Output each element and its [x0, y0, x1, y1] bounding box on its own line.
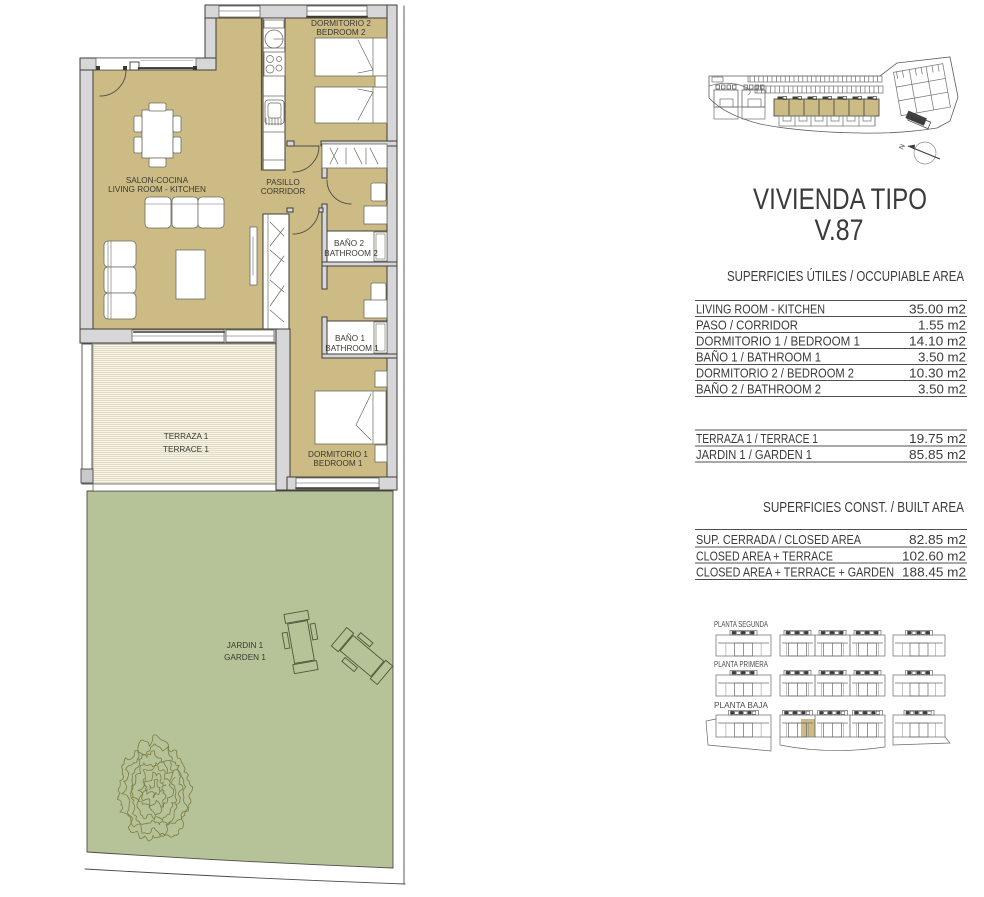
- svg-text:BAÑO 2: BAÑO 2: [334, 238, 364, 248]
- svg-text:DORMITORIO 1 / BEDROOM 1: DORMITORIO 1 / BEDROOM 1: [696, 334, 860, 349]
- svg-text:GARDEN 1: GARDEN 1: [224, 653, 266, 662]
- svg-text:3.50 m2: 3.50 m2: [918, 350, 966, 365]
- svg-text:DORMITORIO 1: DORMITORIO 1: [308, 450, 368, 459]
- svg-text:PLANTA SEGUNDA: PLANTA SEGUNDA: [714, 620, 768, 629]
- svg-text:10.30 m2: 10.30 m2: [909, 366, 966, 381]
- svg-text:SUP. CERRADA / CLOSED AREA: SUP. CERRADA / CLOSED AREA: [696, 532, 861, 547]
- svg-text:BEDROOM 1: BEDROOM 1: [313, 459, 363, 468]
- svg-text:JARDIN 1: JARDIN 1: [227, 641, 264, 650]
- svg-text:LIVING ROOM - KITCHEN: LIVING ROOM - KITCHEN: [108, 185, 206, 194]
- svg-text:BATHROOM 2: BATHROOM 2: [324, 249, 378, 258]
- svg-text:SUPERFICIES CONST. / BUILT AR: SUPERFICIES CONST. / BUILT AREA: [763, 500, 964, 516]
- svg-text:BAÑO 1: BAÑO 1: [335, 333, 365, 343]
- svg-text:BAÑO 2 / BATHROOM 2: BAÑO 2 / BATHROOM 2: [696, 382, 821, 397]
- svg-text:PLANTA BAJA: PLANTA BAJA: [714, 701, 769, 710]
- svg-text:188.45 m2: 188.45 m2: [902, 565, 966, 580]
- svg-text:BEDROOM 2: BEDROOM 2: [316, 28, 366, 37]
- svg-text:JARDIN 1 / GARDEN 1: JARDIN 1 / GARDEN 1: [696, 447, 812, 462]
- svg-text:SUPERFICIES ÚTILES / OCCUPIABL: SUPERFICIES ÚTILES / OCCUPIABLE AREA: [727, 268, 964, 285]
- svg-text:PLANTA PRIMERA: PLANTA PRIMERA: [714, 660, 769, 669]
- svg-text:DORMITORIO 2: DORMITORIO 2: [311, 19, 371, 28]
- svg-text:TERRAZA 1: TERRAZA 1: [164, 432, 209, 441]
- svg-text:PASILLO: PASILLO: [266, 178, 300, 187]
- svg-text:3.50 m2: 3.50 m2: [918, 382, 966, 397]
- svg-text:SALON-COCINA: SALON-COCINA: [126, 176, 189, 185]
- svg-text:DORMITORIO 2 / BEDROOM 2: DORMITORIO 2 / BEDROOM 2: [696, 366, 854, 381]
- svg-text:19.75 m2: 19.75 m2: [909, 431, 966, 446]
- svg-text:VIVIENDA TIPO: VIVIENDA TIPO: [753, 183, 927, 216]
- svg-text:85.85 m2: 85.85 m2: [909, 447, 966, 462]
- svg-text:TERRACE 1: TERRACE 1: [163, 445, 209, 454]
- svg-text:PASO / CORRIDOR: PASO / CORRIDOR: [696, 318, 798, 333]
- svg-text:82.85 m2: 82.85 m2: [909, 532, 966, 547]
- svg-text:14.10 m2: 14.10 m2: [909, 334, 966, 349]
- svg-text:CLOSED AREA + TERRACE + GARDEN: CLOSED AREA + TERRACE + GARDEN: [696, 565, 894, 580]
- svg-text:35.00 m2: 35.00 m2: [909, 302, 966, 317]
- svg-text:102.60 m2: 102.60 m2: [902, 549, 966, 564]
- svg-text:CLOSED AREA + TERRACE: CLOSED AREA + TERRACE: [696, 549, 833, 564]
- svg-text:BATHROOM 1: BATHROOM 1: [325, 344, 379, 353]
- svg-text:CORRIDOR: CORRIDOR: [261, 187, 306, 196]
- svg-text:V.87: V.87: [815, 214, 864, 247]
- svg-text:LIVING ROOM - KITCHEN: LIVING ROOM - KITCHEN: [696, 302, 825, 317]
- svg-text:1.55 m2: 1.55 m2: [918, 318, 966, 333]
- svg-text:TERRAZA 1 / TERRACE 1: TERRAZA 1 / TERRACE 1: [696, 431, 818, 446]
- svg-text:BAÑO 1 / BATHROOM 1: BAÑO 1 / BATHROOM 1: [696, 350, 821, 365]
